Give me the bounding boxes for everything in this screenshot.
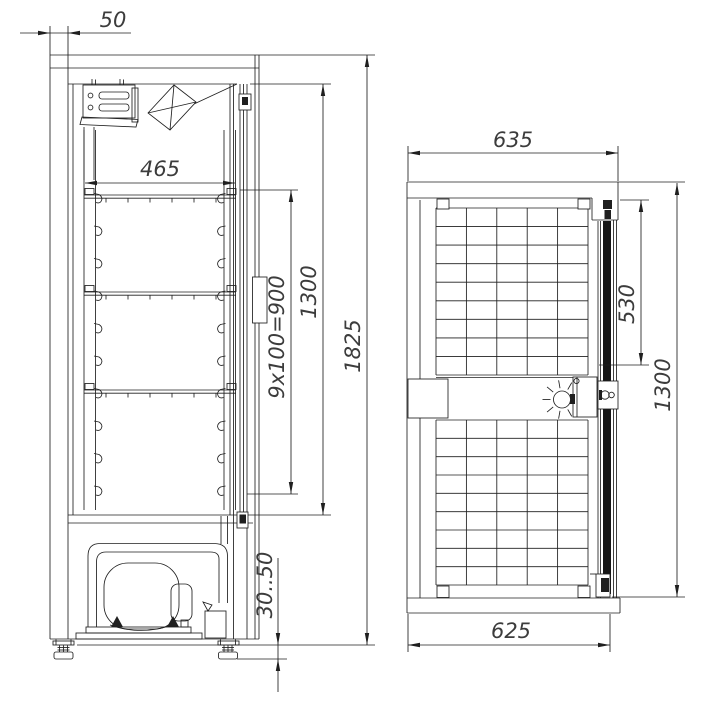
dim-label-50: 50 xyxy=(100,8,127,32)
machine-compartment xyxy=(76,516,228,639)
dimension-door-height: 1300 xyxy=(612,183,685,597)
dimension-wall-top: 50 xyxy=(20,8,131,33)
lamp-assembly xyxy=(543,377,598,419)
technical-drawing-page: 50 465 9x100=900 1300 1825 30..50 xyxy=(0,0,703,703)
shelf-rail-left xyxy=(84,130,96,510)
shelf-hooks xyxy=(94,194,226,496)
dim-label-465: 465 xyxy=(140,157,180,181)
dimension-top-width: 635 xyxy=(408,128,618,181)
wire-shelf-upper xyxy=(436,208,588,378)
dim-label-1825: 1825 xyxy=(341,319,365,372)
fan-unit xyxy=(148,84,237,130)
side-section-view xyxy=(50,26,375,659)
light-bulb-icon xyxy=(554,391,571,408)
dim-label-530: 530 xyxy=(615,284,639,324)
shelf-support-block xyxy=(408,379,448,418)
air-duct-line xyxy=(194,84,237,104)
dim-label-30-50: 30..50 xyxy=(253,552,277,619)
base-plate xyxy=(86,627,191,633)
dimension-total-height: 1825 xyxy=(341,55,367,645)
hinge-top xyxy=(603,200,612,209)
dim-label-625: 625 xyxy=(491,619,531,643)
dimension-shelf-pitch: 9x100=900 xyxy=(240,190,298,494)
drain-box xyxy=(205,611,226,638)
dim-label-635: 635 xyxy=(493,128,533,152)
dimension-interior-height: 1300 xyxy=(297,84,323,515)
front-view xyxy=(407,182,685,613)
wire-shelf-lower xyxy=(436,420,588,585)
foot-threads xyxy=(56,640,236,653)
shelves xyxy=(84,189,236,398)
accumulator xyxy=(171,584,192,621)
dimension-shelf-width: 465 xyxy=(85,157,235,183)
condenser-pipe xyxy=(88,544,228,628)
refrigerator-technical-drawing: 50 465 9x100=900 1300 1825 30..50 xyxy=(0,0,703,703)
dim-label-9x100: 9x100=900 xyxy=(265,275,289,399)
evaporator-unit xyxy=(80,79,138,180)
dim-label-1300-right: 1300 xyxy=(651,358,675,411)
compressor xyxy=(104,563,179,629)
door-section xyxy=(237,84,267,528)
dimension-feet-adjust: 30..50 xyxy=(253,552,278,692)
dimension-bottom-width: 625 xyxy=(408,614,610,652)
dim-label-1300-left: 1300 xyxy=(297,265,321,318)
